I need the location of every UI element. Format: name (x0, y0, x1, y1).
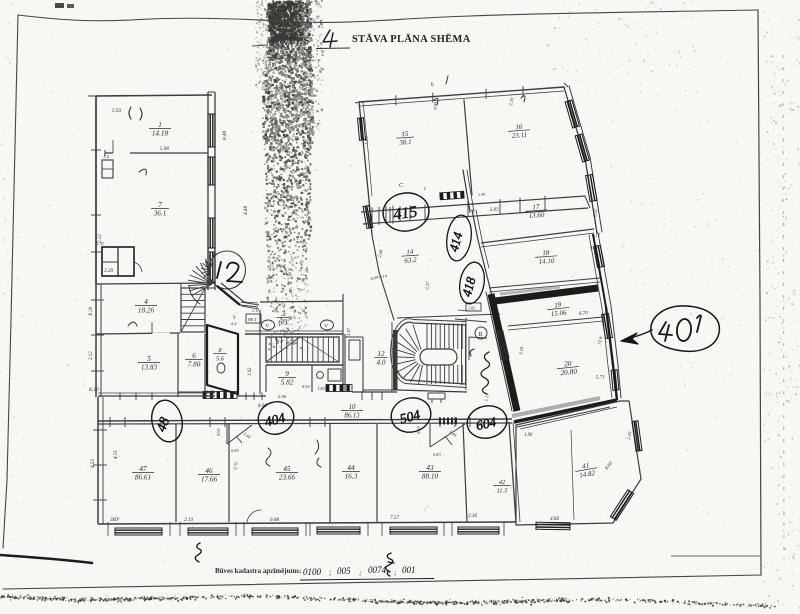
svg-text:7.57: 7.57 (390, 515, 399, 521)
svg-text:11.5: 11.5 (496, 487, 508, 494)
svg-text:6: 6 (192, 352, 196, 360)
svg-text:4.66: 4.66 (550, 515, 559, 522)
svg-text:16: 16 (515, 123, 523, 132)
svg-text:8.48: 8.48 (221, 131, 228, 140)
svg-text:415: 415 (392, 203, 418, 223)
svg-text:15: 15 (401, 130, 409, 139)
svg-text:13.60: 13.60 (528, 211, 545, 220)
svg-text:20.80: 20.80 (560, 366, 578, 377)
svg-text:10: 10 (349, 404, 356, 411)
svg-text:14.10: 14.10 (538, 257, 555, 266)
svg-text:23.66: 23.66 (279, 473, 296, 481)
svg-text:38.1: 38.1 (398, 138, 412, 147)
svg-text:1: 1 (158, 121, 162, 129)
svg-text:005: 005 (337, 566, 351, 576)
svg-text:36.1: 36.1 (153, 209, 167, 217)
svg-text:C: C (399, 182, 403, 189)
svg-text:46: 46 (205, 467, 213, 475)
svg-text:1.11: 1.11 (252, 308, 259, 313)
svg-text:1.90: 1.90 (524, 433, 533, 438)
svg-text:0.83: 0.83 (231, 448, 239, 453)
svg-text:2.36: 2.36 (468, 513, 477, 519)
svg-text:14: 14 (406, 248, 414, 257)
svg-text:43: 43 (426, 464, 434, 472)
svg-text:BŪVES: BŪVES (271, 35, 310, 47)
svg-text:15.06: 15.06 (550, 309, 567, 319)
svg-text:17.66: 17.66 (201, 475, 218, 483)
svg-text:6.3: 6.3 (279, 318, 288, 326)
svg-text:6.96: 6.96 (278, 394, 287, 399)
svg-text:4.53: 4.53 (114, 450, 119, 459)
svg-text:2.13: 2.13 (184, 517, 193, 523)
svg-text:1.4: 1.4 (103, 154, 109, 159)
svg-text:5.85: 5.85 (490, 207, 500, 213)
svg-text:001: 001 (402, 565, 416, 575)
svg-text:6.88: 6.88 (270, 517, 279, 523)
svg-text:63.2: 63.2 (404, 256, 417, 265)
svg-text:1.62: 1.62 (248, 367, 253, 376)
svg-text:STĀVA PLĀNA SHĒMA: STĀVA PLĀNA SHĒMA (352, 34, 471, 45)
svg-text:K.60: K.60 (88, 388, 99, 393)
svg-text:12: 12 (377, 350, 385, 358)
svg-text:2.12: 2.12 (89, 351, 94, 360)
svg-text:3ВУ: 3ВУ (110, 517, 120, 523)
svg-text:5.82: 5.82 (281, 378, 294, 386)
svg-text:7.80: 7.80 (188, 360, 201, 368)
svg-text:5.71: 5.71 (596, 374, 606, 381)
svg-text:3.20: 3.20 (104, 268, 113, 274)
svg-text:V: V (325, 325, 329, 330)
svg-text:4.48: 4.48 (242, 206, 249, 215)
svg-text:86.13: 86.13 (344, 412, 360, 419)
svg-text:17: 17 (532, 203, 540, 212)
svg-text:5.93: 5.93 (112, 108, 121, 114)
svg-text:;: ; (359, 568, 362, 577)
svg-text:3: 3 (280, 310, 285, 318)
svg-text:23.11: 23.11 (512, 131, 528, 140)
svg-text:0.92: 0.92 (216, 428, 221, 436)
svg-text:47: 47 (139, 465, 147, 473)
svg-text:14.18: 14.18 (152, 129, 169, 137)
svg-text:B: B (479, 332, 483, 338)
svg-text:0.92: 0.92 (302, 384, 310, 389)
svg-text:18: 18 (542, 249, 550, 258)
svg-text:НЕТ: НЕТ (248, 317, 257, 322)
svg-text:16.3: 16.3 (345, 472, 358, 480)
svg-text:7: 7 (158, 201, 162, 209)
svg-text:5.98: 5.98 (160, 147, 169, 152)
svg-text:13.83: 13.83 (141, 363, 158, 371)
svg-text:0100: 0100 (303, 567, 322, 577)
svg-text:42: 42 (499, 479, 506, 486)
svg-text:45: 45 (283, 465, 291, 473)
svg-text:88.10: 88.10 (422, 472, 439, 480)
svg-text:9: 9 (285, 370, 289, 378)
svg-text:;: ; (329, 568, 332, 577)
svg-text:1.31: 1.31 (96, 241, 104, 246)
svg-text:4.53: 4.53 (91, 459, 96, 468)
svg-text:4: 4 (144, 298, 148, 306)
svg-text:V: V (266, 325, 270, 330)
svg-text:5.6: 5.6 (216, 355, 225, 362)
svg-text:44: 44 (347, 464, 355, 472)
svg-text:86.61: 86.61 (135, 473, 151, 481)
svg-text:Būves kadastra apzīmējums:: Būves kadastra apzīmējums: (215, 567, 301, 575)
svg-text:1.82: 1.82 (468, 306, 475, 311)
svg-text:1.46: 1.46 (478, 191, 487, 197)
svg-text:6.70: 6.70 (579, 310, 589, 317)
svg-text:0.83: 0.83 (433, 452, 441, 457)
svg-text:1.40: 1.40 (317, 386, 325, 391)
svg-text:2.2: 2.2 (231, 321, 237, 326)
svg-text:18.26: 18.26 (138, 306, 155, 314)
svg-text:4.0: 4.0 (377, 358, 386, 366)
svg-text:0074: 0074 (368, 565, 387, 575)
svg-text:;: ; (394, 568, 397, 577)
svg-text:Б: Б (431, 83, 434, 88)
svg-text:1.67: 1.67 (346, 327, 351, 336)
svg-text:5: 5 (147, 355, 151, 363)
svg-text:X.20: X.20 (89, 306, 94, 317)
